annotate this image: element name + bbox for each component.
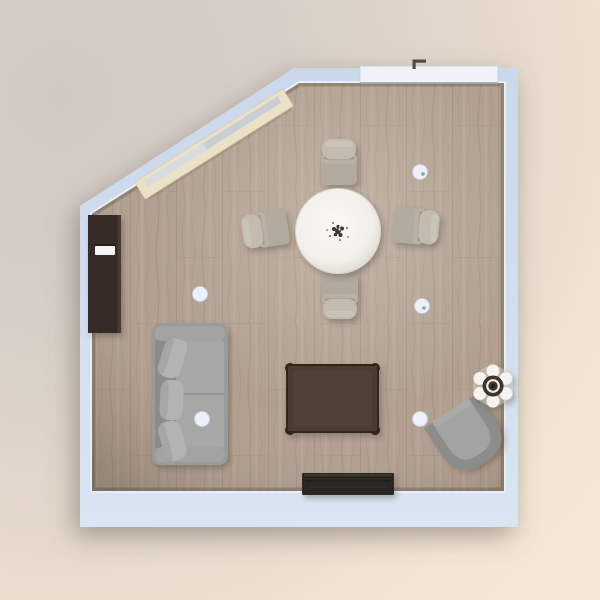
ceiling-lamp-3[interactable] bbox=[413, 165, 428, 180]
decor-core bbox=[491, 384, 495, 388]
sofa-armrest-top bbox=[155, 326, 225, 341]
coffee-table-panel bbox=[293, 371, 372, 426]
coffee-table[interactable] bbox=[285, 363, 380, 435]
cabinet[interactable] bbox=[88, 215, 121, 333]
lamp-detail-2 bbox=[422, 306, 426, 310]
cabinet-drawer bbox=[95, 246, 115, 255]
ceiling-lamp-2[interactable] bbox=[195, 412, 210, 427]
door[interactable] bbox=[360, 60, 498, 84]
tv-console-body bbox=[302, 473, 394, 495]
tv-console[interactable] bbox=[302, 473, 394, 495]
ceiling-lamp-4[interactable] bbox=[415, 299, 430, 314]
cabinet-edge bbox=[118, 215, 122, 333]
floor-plan-canvas bbox=[0, 0, 600, 600]
centerpiece-highlight bbox=[339, 229, 341, 231]
sofa[interactable] bbox=[152, 323, 228, 465]
ceiling-lamp-1[interactable] bbox=[193, 287, 208, 302]
door-panel bbox=[360, 66, 498, 83]
ceiling-lamp-5[interactable] bbox=[413, 412, 428, 427]
dining-chair-top[interactable] bbox=[321, 139, 357, 185]
cabinet-drawer-shadow bbox=[95, 244, 115, 246]
backdrop bbox=[0, 0, 600, 600]
lamp-detail-1 bbox=[421, 172, 425, 176]
dining-chair-bottom[interactable] bbox=[322, 273, 358, 319]
dining-chair-right[interactable] bbox=[392, 206, 441, 246]
cabinet-body bbox=[88, 215, 121, 333]
